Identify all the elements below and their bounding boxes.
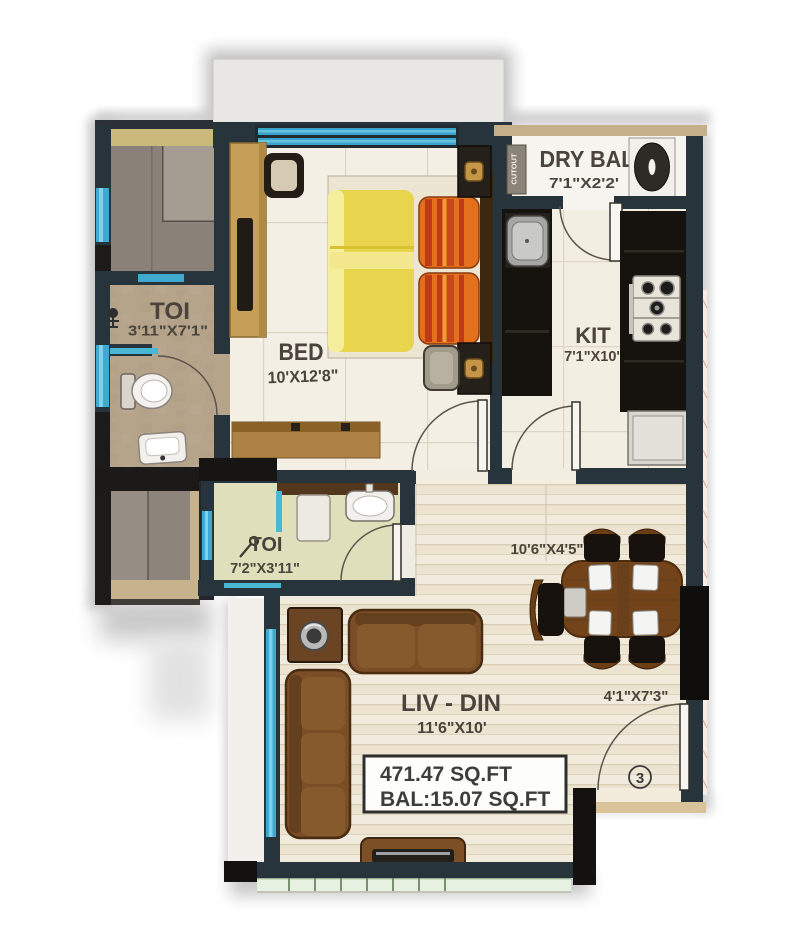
svg-text:7'1"X10': 7'1"X10' [564,349,620,365]
svg-text:10'6"X4'5": 10'6"X4'5" [510,541,583,558]
svg-text:LIV - DIN: LIV - DIN [401,690,501,717]
svg-text:10'X12'8": 10'X12'8" [267,367,339,387]
svg-text:7'2"X3'11": 7'2"X3'11" [230,561,300,577]
svg-text:BAL:15.07 SQ.FT: BAL:15.07 SQ.FT [380,788,551,811]
svg-text:11'6"X10': 11'6"X10' [417,720,486,737]
svg-text:DRY BAL: DRY BAL [540,146,635,172]
svg-text:3: 3 [636,770,644,787]
svg-text:CUTOUT: CUTOUT [510,153,519,185]
svg-text:TOI: TOI [150,298,190,325]
svg-text:TOI: TOI [250,534,283,556]
svg-text:7'1"X2'2': 7'1"X2'2' [549,175,619,192]
svg-text:BED: BED [279,339,324,366]
svg-text:3'11"X7'1": 3'11"X7'1" [128,323,208,340]
svg-text:KIT: KIT [575,323,611,348]
svg-text:4'1"X7'3": 4'1"X7'3" [604,688,669,705]
svg-text:471.47 SQ.FT: 471.47 SQ.FT [380,763,512,786]
